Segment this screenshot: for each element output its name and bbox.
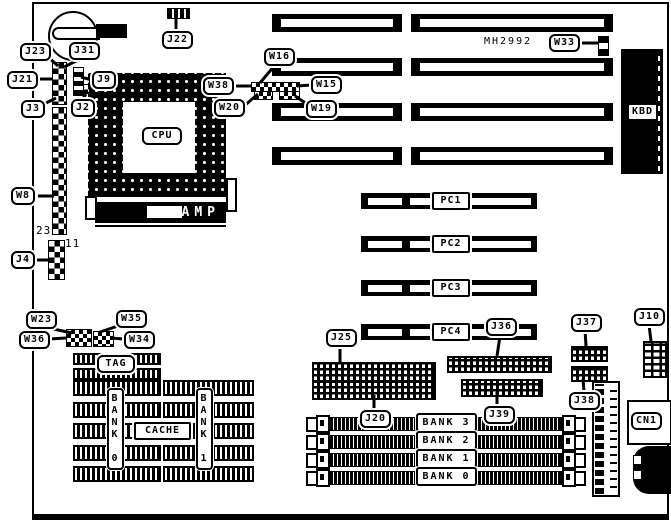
label-pc4: PC4 [432,323,470,341]
label-bank2: BANK 2 [416,431,477,450]
kbd-dashed-line [658,52,660,171]
amp-bar: AMP [95,202,226,223]
label-j20: J20 [360,410,391,428]
label-cache-bank1: BANK 1 [196,388,213,470]
label-j3: J3 [21,100,45,118]
label-j39: J39 [484,406,515,424]
isa-slot [272,14,402,32]
isa-slot [411,147,613,165]
connector-j25-row1 [312,362,436,382]
jumper-strip-w19 [279,91,300,100]
jumper-block-w34 [93,331,114,347]
label-j4: J4 [11,251,35,269]
header-w8 [52,107,67,235]
label-cache: CACHE [134,422,191,440]
connector-j38 [571,366,608,382]
connector-j10 [643,341,667,378]
isa-slot [411,103,613,121]
part-number-text: MH2992 [484,36,532,47]
label-pc3: PC3 [432,279,470,297]
label-pc2: PC2 [432,235,470,253]
isa-slot [411,58,613,76]
label-j31: J31 [69,42,100,60]
label-kbd: KBD [627,103,658,121]
jumper-strip-w20 [254,91,273,100]
component-right-of-socket [226,178,237,212]
jumper-w33 [598,36,609,56]
label-w16: W16 [264,48,295,66]
isa-slot [272,147,402,165]
din-pad [633,455,642,465]
battery-clip [52,27,100,40]
label-cn1: CN1 [631,412,662,430]
header-j31-j21 [52,62,67,105]
label-pc1: PC1 [432,192,470,210]
motherboard-diagram: AMP [0,0,671,520]
label-w36: W36 [19,331,50,349]
label-cache-bank0: BANK 0 [107,388,124,470]
connector-j39 [461,379,543,397]
label-j10: J10 [634,308,665,326]
label-w34: W34 [124,331,155,349]
j4-pin-number: 11 [65,237,80,250]
isa-slot [411,14,613,32]
label-w19: W19 [306,100,337,118]
label-j36: J36 [486,318,517,336]
din-pad [633,470,642,480]
label-j21: J21 [7,71,38,89]
label-w20: W20 [214,99,245,117]
label-w23: W23 [26,311,57,329]
label-j23: J23 [20,43,51,61]
connector-j20 [312,381,436,400]
amp-window [147,206,182,221]
label-w15: W15 [311,76,342,94]
amp-underline [95,225,226,227]
connector-j22 [167,8,190,19]
label-cpu: CPU [142,127,182,145]
label-bank1: BANK 1 [416,449,477,468]
label-w38: W38 [203,77,234,95]
connector-j4 [48,240,65,280]
label-j37: J37 [571,314,602,332]
amp-label: AMP [182,205,220,220]
label-tag: TAG [97,355,135,373]
label-j2: J2 [71,99,95,117]
label-j22: J22 [162,31,193,49]
label-w33: W33 [549,34,580,52]
label-w35: W35 [116,310,147,328]
label-j25: J25 [326,329,357,347]
connector-j36 [447,356,552,373]
label-j38: J38 [569,392,600,410]
label-bank0: BANK 0 [416,467,477,486]
w8-pin-number: 23 [36,224,51,237]
battery-clip-end [96,24,127,38]
jumper-block-w23 [66,329,92,347]
label-j9: J9 [92,71,116,89]
label-w8: W8 [11,187,35,205]
connector-j37 [571,346,608,362]
label-bank3: BANK 3 [416,413,477,432]
